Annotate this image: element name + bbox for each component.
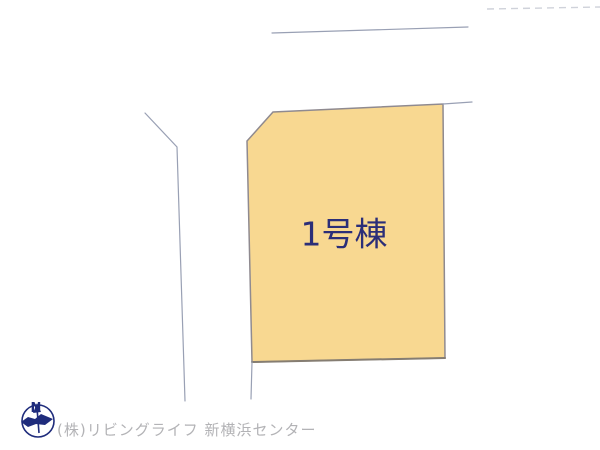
boundary-stub-top-right bbox=[443, 102, 472, 104]
site-plan-image: 1号棟 N (株)リビングライフ 新横浜センター bbox=[0, 0, 600, 450]
north-compass-icon: N bbox=[21, 401, 54, 437]
boundary-stub-bottom-left bbox=[251, 362, 252, 399]
site-plan-canvas: 1号棟 N bbox=[0, 0, 600, 450]
road-boundary-line-top bbox=[272, 27, 468, 33]
faint-boundary-line-top-right bbox=[487, 7, 600, 9]
company-credit: (株)リビングライフ 新横浜センター bbox=[57, 419, 316, 440]
lot-label: 1号棟 bbox=[301, 215, 388, 254]
road-boundary-line-left bbox=[145, 113, 185, 401]
